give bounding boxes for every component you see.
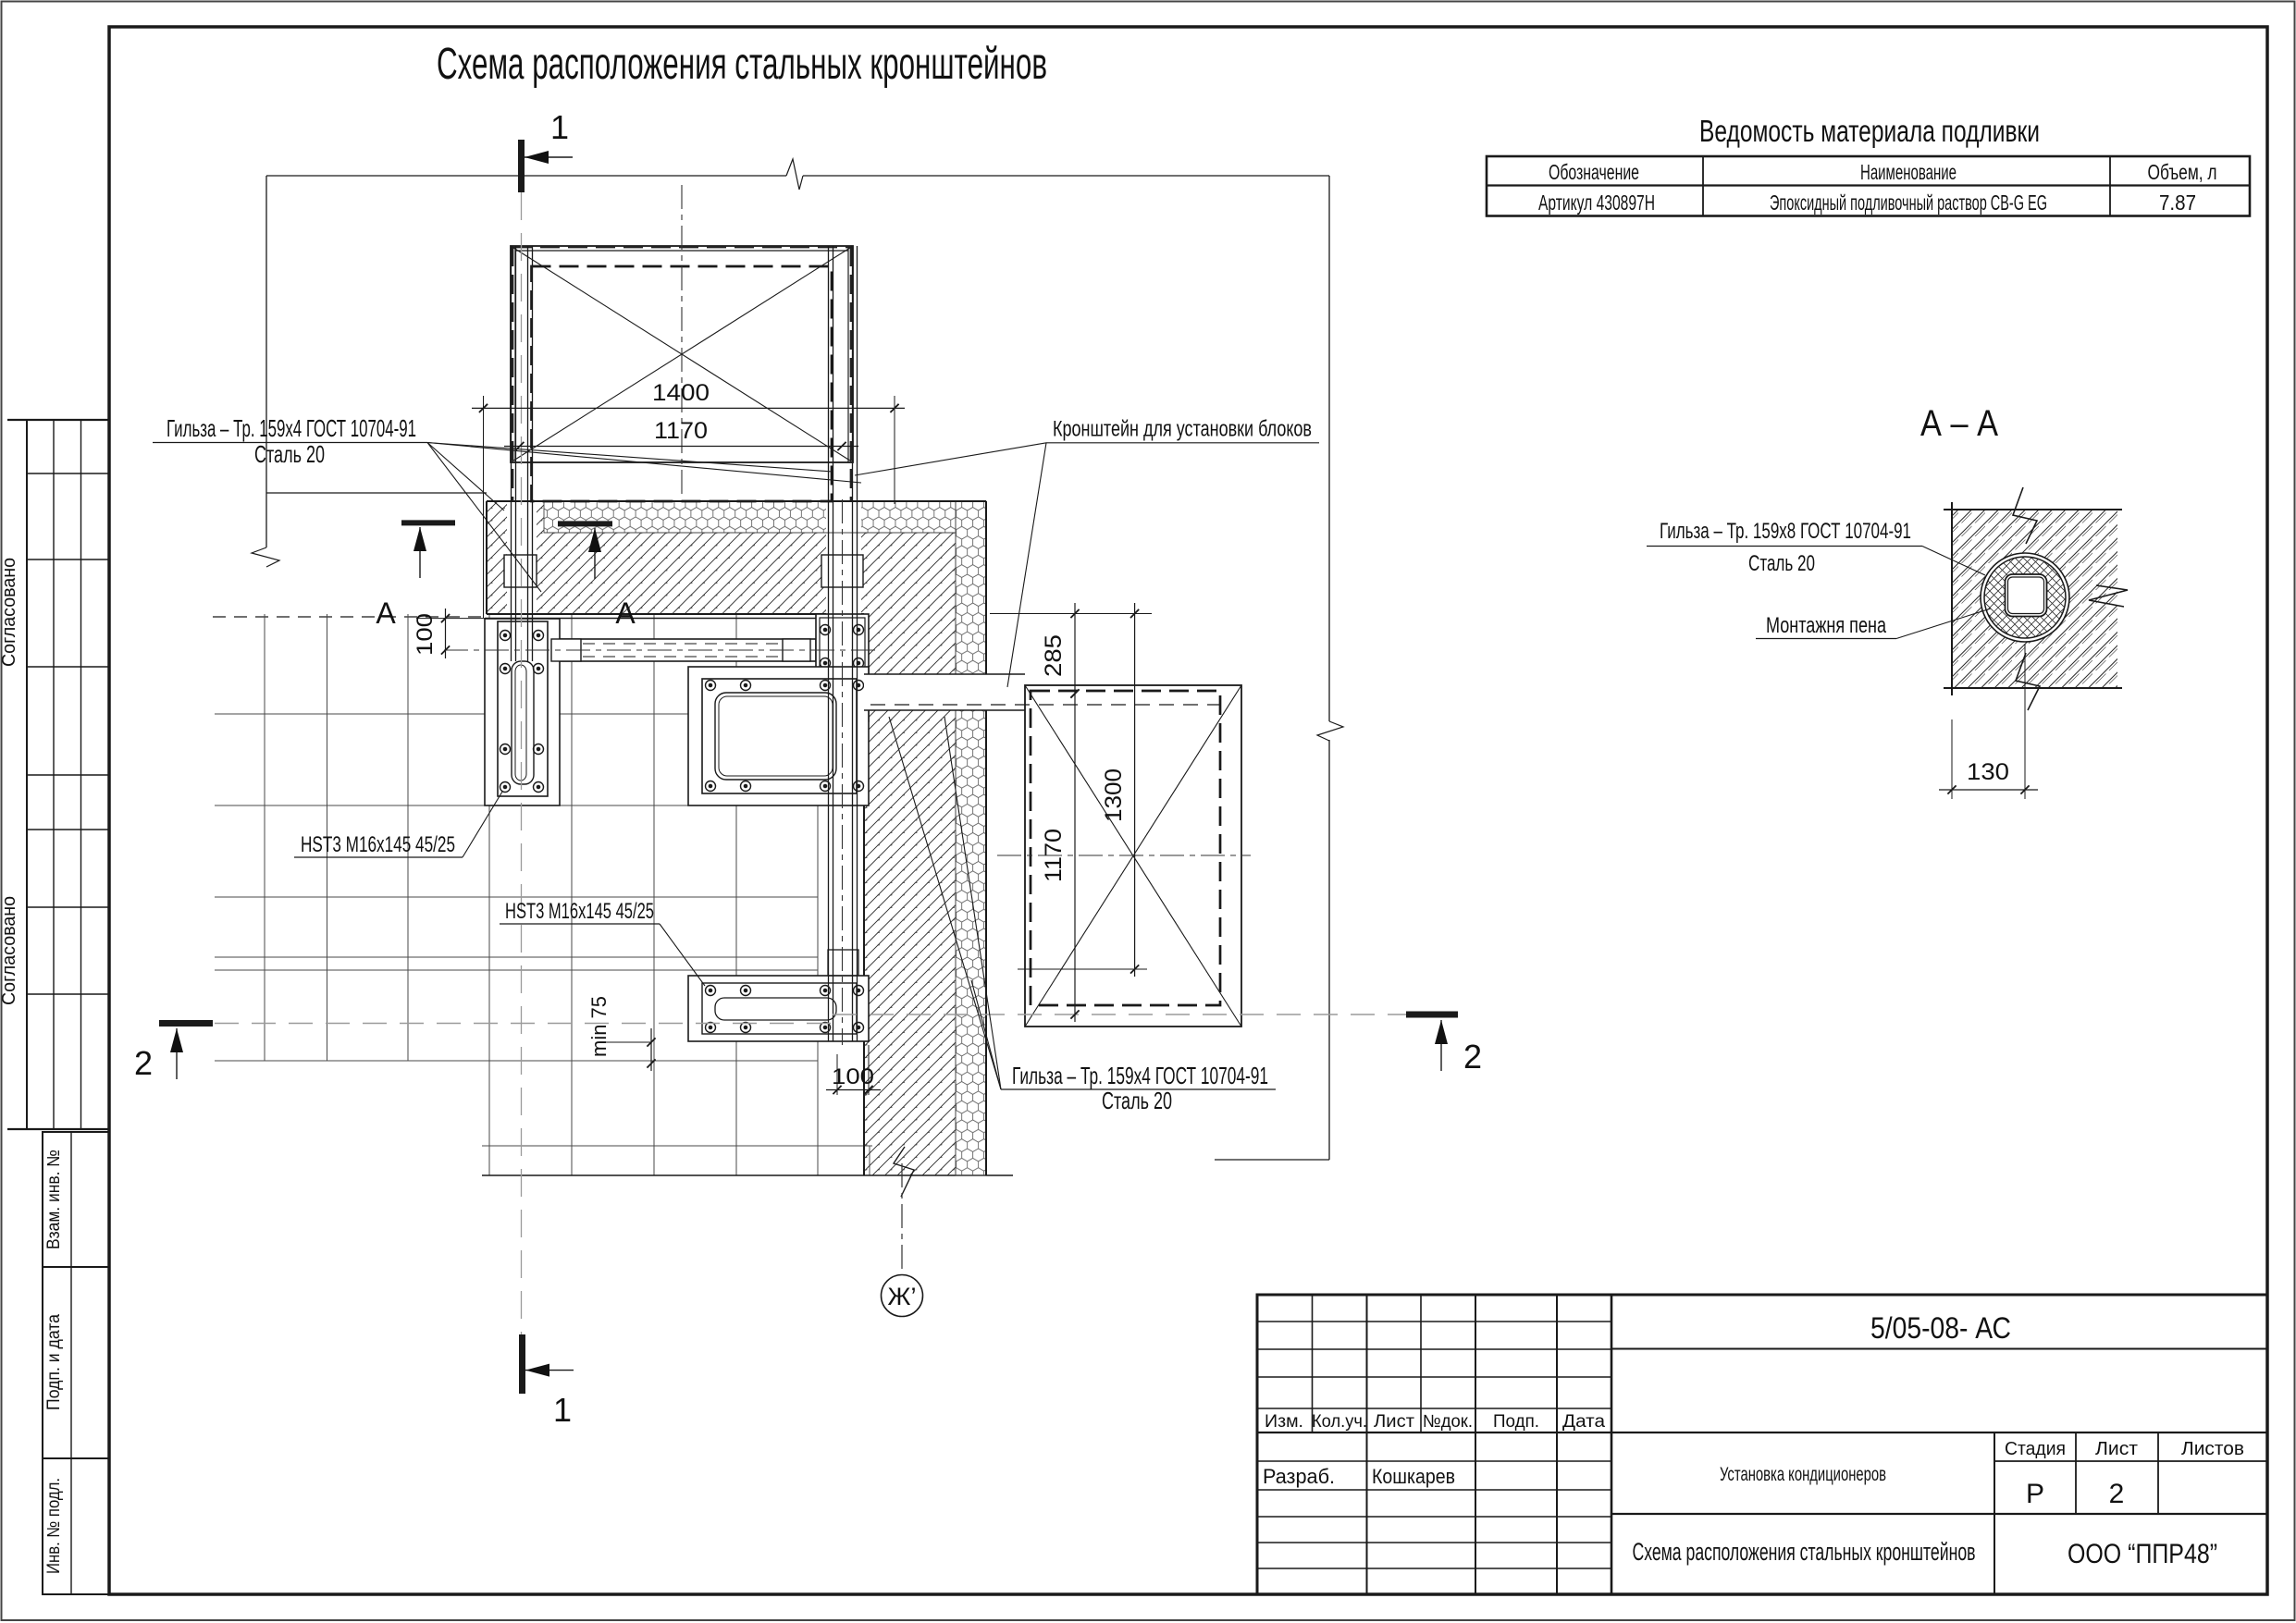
svg-text:2: 2 (134, 1044, 153, 1082)
svg-text:Кошкарев: Кошкарев (1372, 1465, 1455, 1488)
svg-text:Изм.: Изм. (1265, 1412, 1303, 1432)
svg-text:Гильза – Тр. 159х8 ГОСТ 10704-: Гильза – Тр. 159х8 ГОСТ 10704-91 (1660, 519, 1911, 544)
svg-text:Артикул 430897Н: Артикул 430897Н (1538, 191, 1655, 215)
svg-text:Инв. № подл.: Инв. № подл. (44, 1478, 64, 1574)
svg-text:№док.: №док. (1423, 1412, 1473, 1432)
svg-text:Листов: Листов (2181, 1439, 2244, 1459)
svg-text:Монтажня пена: Монтажня пена (1766, 613, 1886, 638)
svg-text:100: 100 (832, 1064, 874, 1089)
svg-text:HST3 M16x145 45/25: HST3 M16x145 45/25 (301, 832, 455, 857)
svg-text:Схема расположения стальных кр: Схема расположения стальных кронштейнов (1633, 1538, 1976, 1566)
svg-text:Сталь 20: Сталь 20 (1748, 551, 1815, 576)
svg-text:1170: 1170 (654, 418, 708, 444)
svg-text:Согласовано: Согласовано (0, 558, 19, 667)
svg-text:Наименование: Наименование (1860, 160, 1957, 184)
svg-text:Ж’: Ж’ (888, 1283, 917, 1310)
svg-text:5/05-08- АС: 5/05-08- АС (1870, 1311, 2011, 1345)
svg-text:Схема расположения стальных кр: Схема расположения стальных кронштейнов (437, 40, 1047, 89)
svg-text:Обозначение: Обозначение (1549, 160, 1639, 184)
svg-text:1400: 1400 (652, 380, 710, 406)
svg-text:А: А (615, 596, 636, 630)
svg-text:Сталь 20: Сталь 20 (1102, 1087, 1172, 1114)
svg-text:Гильза – Тр. 159х4 ГОСТ 10704-: Гильза – Тр. 159х4 ГОСТ 10704-91 (1012, 1062, 1268, 1089)
svg-text:ООО “ППР48”: ООО “ППР48” (2068, 1539, 2217, 1569)
svg-text:Кол.уч.: Кол.уч. (1312, 1412, 1367, 1432)
svg-text:1: 1 (553, 1391, 572, 1429)
svg-text:1170: 1170 (1041, 829, 1067, 882)
svg-text:Согласовано: Согласовано (0, 896, 19, 1005)
svg-text:Стадия: Стадия (2005, 1439, 2066, 1459)
svg-text:Разраб.: Разраб. (1263, 1465, 1335, 1488)
svg-text:Эпоксидный подливочный раствор: Эпоксидный подливочный раствор CB-G EG (1770, 191, 2047, 215)
svg-text:7.87: 7.87 (2159, 191, 2196, 215)
svg-text:Лист: Лист (1374, 1412, 1414, 1432)
svg-text:Объем, л: Объем, л (2148, 160, 2217, 184)
svg-text:100: 100 (413, 613, 438, 656)
svg-text:Сталь 20: Сталь 20 (254, 440, 325, 468)
svg-text:Подп. и дата: Подп. и дата (44, 1314, 64, 1410)
svg-text:Гильза – Тр. 159х4 ГОСТ 10704-: Гильза – Тр. 159х4 ГОСТ 10704-91 (167, 414, 416, 442)
svg-text:285: 285 (1041, 634, 1067, 677)
svg-text:2: 2 (1463, 1038, 1482, 1076)
svg-text:HST3 M16x145 45/25: HST3 M16x145 45/25 (505, 899, 654, 924)
svg-text:Р: Р (2026, 1479, 2044, 1509)
svg-text:1300: 1300 (1101, 768, 1127, 822)
svg-text:Дата: Дата (1562, 1412, 1605, 1432)
svg-text:Кронштейн для установки блоков: Кронштейн для установки блоков (1053, 417, 1312, 442)
svg-text:А – А: А – А (1920, 403, 1998, 444)
svg-text:Лист: Лист (2095, 1439, 2138, 1459)
svg-text:130: 130 (1967, 759, 2009, 785)
svg-text:1: 1 (550, 108, 569, 146)
svg-text:Ведомость материала подливки: Ведомость материала подливки (1699, 114, 2040, 148)
svg-text:Взам. инв. №: Взам. инв. № (44, 1150, 64, 1249)
svg-text:Установка кондиционеров: Установка кондиционеров (1720, 1464, 1886, 1485)
svg-text:Подп.: Подп. (1493, 1412, 1539, 1432)
svg-text:min 75: min 75 (587, 996, 611, 1057)
svg-text:А: А (376, 596, 396, 630)
svg-text:2: 2 (2109, 1479, 2125, 1509)
